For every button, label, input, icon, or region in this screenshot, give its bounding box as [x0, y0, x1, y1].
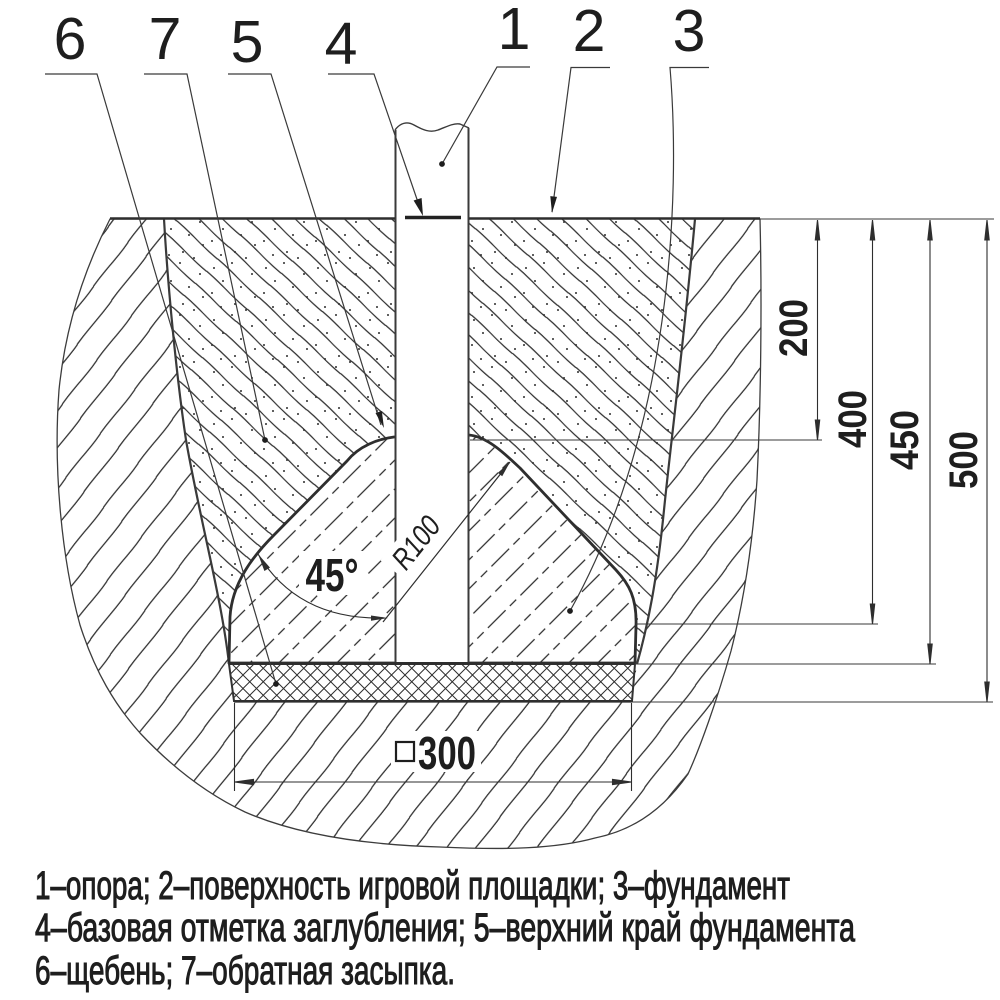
svg-text:1–опора; 2–поверхность игровой: 1–опора; 2–поверхность игровой площадки;… [35, 864, 790, 908]
svg-text:45°: 45° [306, 549, 359, 601]
svg-text:2: 2 [573, 0, 606, 64]
svg-text:4: 4 [325, 11, 358, 77]
svg-text:400: 400 [831, 390, 875, 448]
svg-text:6: 6 [54, 6, 87, 72]
svg-text:200: 200 [772, 299, 816, 357]
svg-text:4–базовая отметка заглубления;: 4–базовая отметка заглубления; 5–верхний… [35, 906, 856, 950]
svg-text:450: 450 [883, 410, 927, 470]
svg-text:6–щебень; 7–обратная засыпка.: 6–щебень; 7–обратная засыпка. [35, 949, 455, 993]
svg-text:300: 300 [418, 727, 476, 779]
svg-text:5: 5 [231, 9, 264, 75]
svg-text:1: 1 [498, 0, 531, 62]
svg-text:7: 7 [149, 6, 182, 72]
svg-text:500: 500 [942, 431, 986, 489]
svg-text:3: 3 [673, 0, 706, 64]
